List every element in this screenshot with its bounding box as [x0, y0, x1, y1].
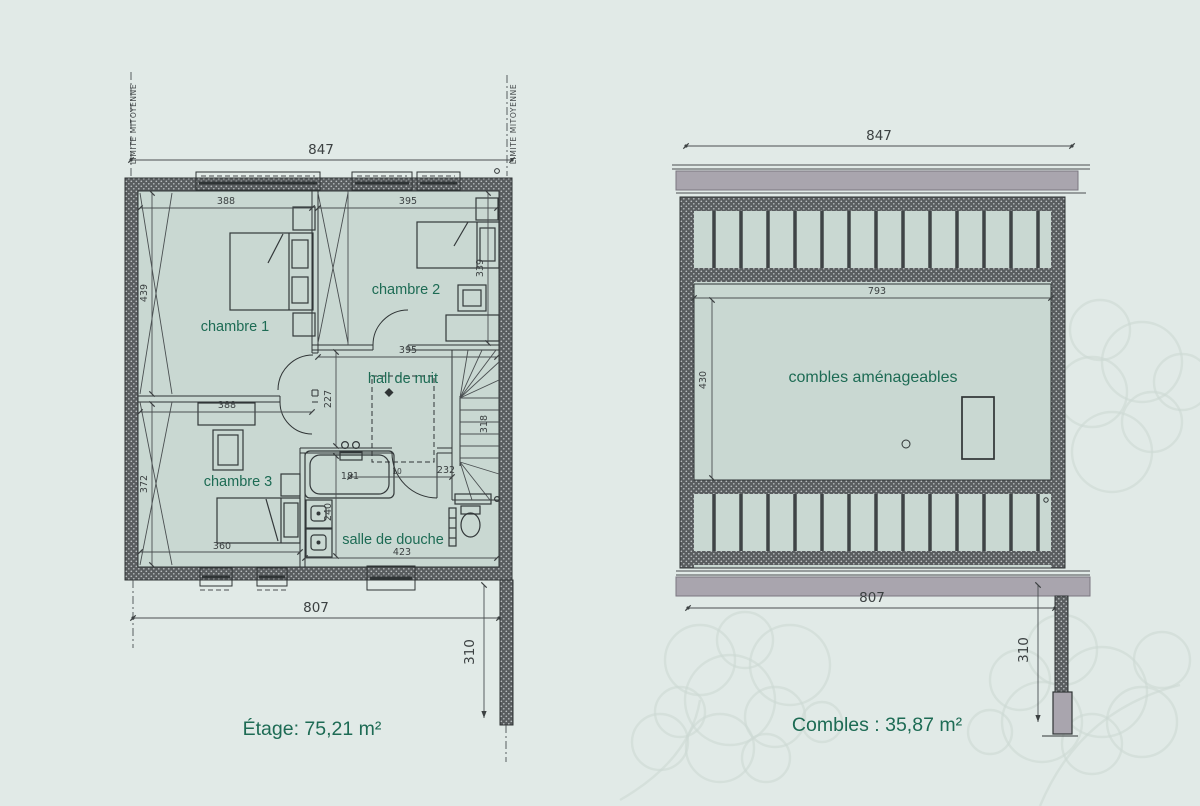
dim-430: 430: [698, 371, 709, 389]
dim-240: 240: [323, 503, 334, 521]
dim-395-hall: 395: [399, 345, 417, 356]
dim-847: 847: [308, 142, 334, 158]
floor-plan-sheet: LIMITE MITOYENNE LIMITE MITOYENNE 847: [0, 0, 1200, 806]
dim-310-right: 310: [1016, 637, 1032, 663]
dim-227: 227: [323, 390, 334, 408]
label-salle-de-douche: salle de douche: [342, 532, 444, 548]
dim-793: 793: [868, 286, 886, 297]
dim-388-c1: 388: [217, 196, 235, 207]
dim-807: 807: [303, 600, 329, 616]
dim-181: 181: [341, 471, 359, 482]
label-chambre2: chambre 2: [372, 282, 441, 298]
combles-area-title: Combles : 35,87 m²: [792, 714, 963, 736]
dim-339: 339: [475, 259, 486, 277]
roof-eave-top: [672, 165, 1090, 193]
dim-310: 310: [462, 639, 478, 665]
dim-423: 423: [393, 547, 411, 558]
limite-mitoyenne-label-left: LIMITE MITOYENNE: [129, 84, 138, 164]
dim-360: 360: [213, 541, 231, 552]
label-chambre3: chambre 3: [204, 474, 273, 490]
dim-10: 10: [392, 467, 402, 476]
label-combles-amenageables: combles aménageables: [789, 369, 958, 386]
dim-388-c3: 388: [218, 400, 236, 411]
dim-439: 439: [139, 284, 150, 302]
dim-395-c2: 395: [399, 196, 417, 207]
dim-847-right: 847: [866, 128, 892, 144]
limite-mitoyenne-label-right: LIMITE MITOYENNE: [509, 84, 518, 164]
label-hall-de-nuit: hall de nuit: [368, 371, 438, 387]
dim-807-right: 807: [859, 590, 885, 606]
etage-area-title: Étage: 75,21 m²: [243, 717, 382, 740]
dim-372: 372: [139, 475, 150, 493]
label-chambre1: chambre 1: [201, 319, 270, 335]
dim-232: 232: [437, 465, 455, 476]
dim-318: 318: [479, 415, 490, 433]
